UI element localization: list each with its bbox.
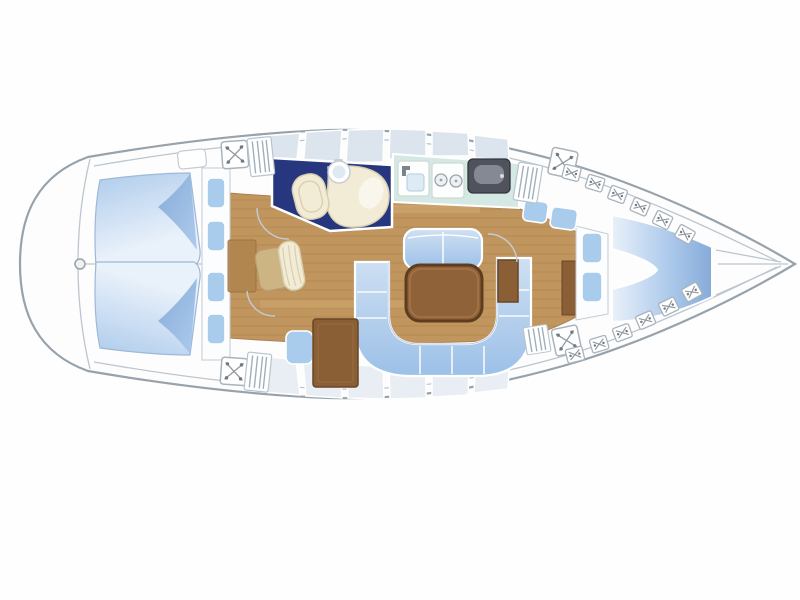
galley <box>393 154 519 208</box>
nav-desk <box>228 240 256 292</box>
vent-grille-icon <box>244 352 272 392</box>
aft-cabin-steps <box>202 168 230 360</box>
vent-grille-icon <box>523 324 551 355</box>
roof-panel <box>474 135 509 160</box>
chart-table <box>313 319 358 387</box>
bulkhead-shelf-cushion <box>582 233 602 263</box>
layout-canvas <box>0 0 800 600</box>
settee-end-locker <box>498 260 518 302</box>
stove <box>432 163 464 198</box>
oven <box>468 159 510 193</box>
step-cushion <box>207 178 225 208</box>
aft-cabin-lower-berth <box>95 262 200 355</box>
yacht-layout-diagram <box>0 0 800 600</box>
dinette-table <box>406 265 482 321</box>
aft-cabin-upper-berth <box>95 173 200 266</box>
deck-hatch-icon <box>221 140 249 169</box>
step-cushion <box>207 272 225 302</box>
rudder-post-fitting <box>75 259 85 269</box>
vent-grille-icon <box>247 136 275 176</box>
mast-door-panel <box>562 261 576 315</box>
deck-hatch-icon <box>220 357 248 386</box>
stern-deck-box <box>177 149 207 170</box>
galley-sink <box>398 161 429 196</box>
roof-panel <box>432 131 469 156</box>
nav-seat-cushion <box>286 331 313 364</box>
bench-settee <box>404 229 482 269</box>
bulkhead-shelf-cushion <box>582 272 602 302</box>
step-cushion <box>207 221 225 251</box>
roof-panel <box>346 129 384 163</box>
step-cushion <box>207 314 225 344</box>
companionway-steps-icon <box>513 162 543 203</box>
